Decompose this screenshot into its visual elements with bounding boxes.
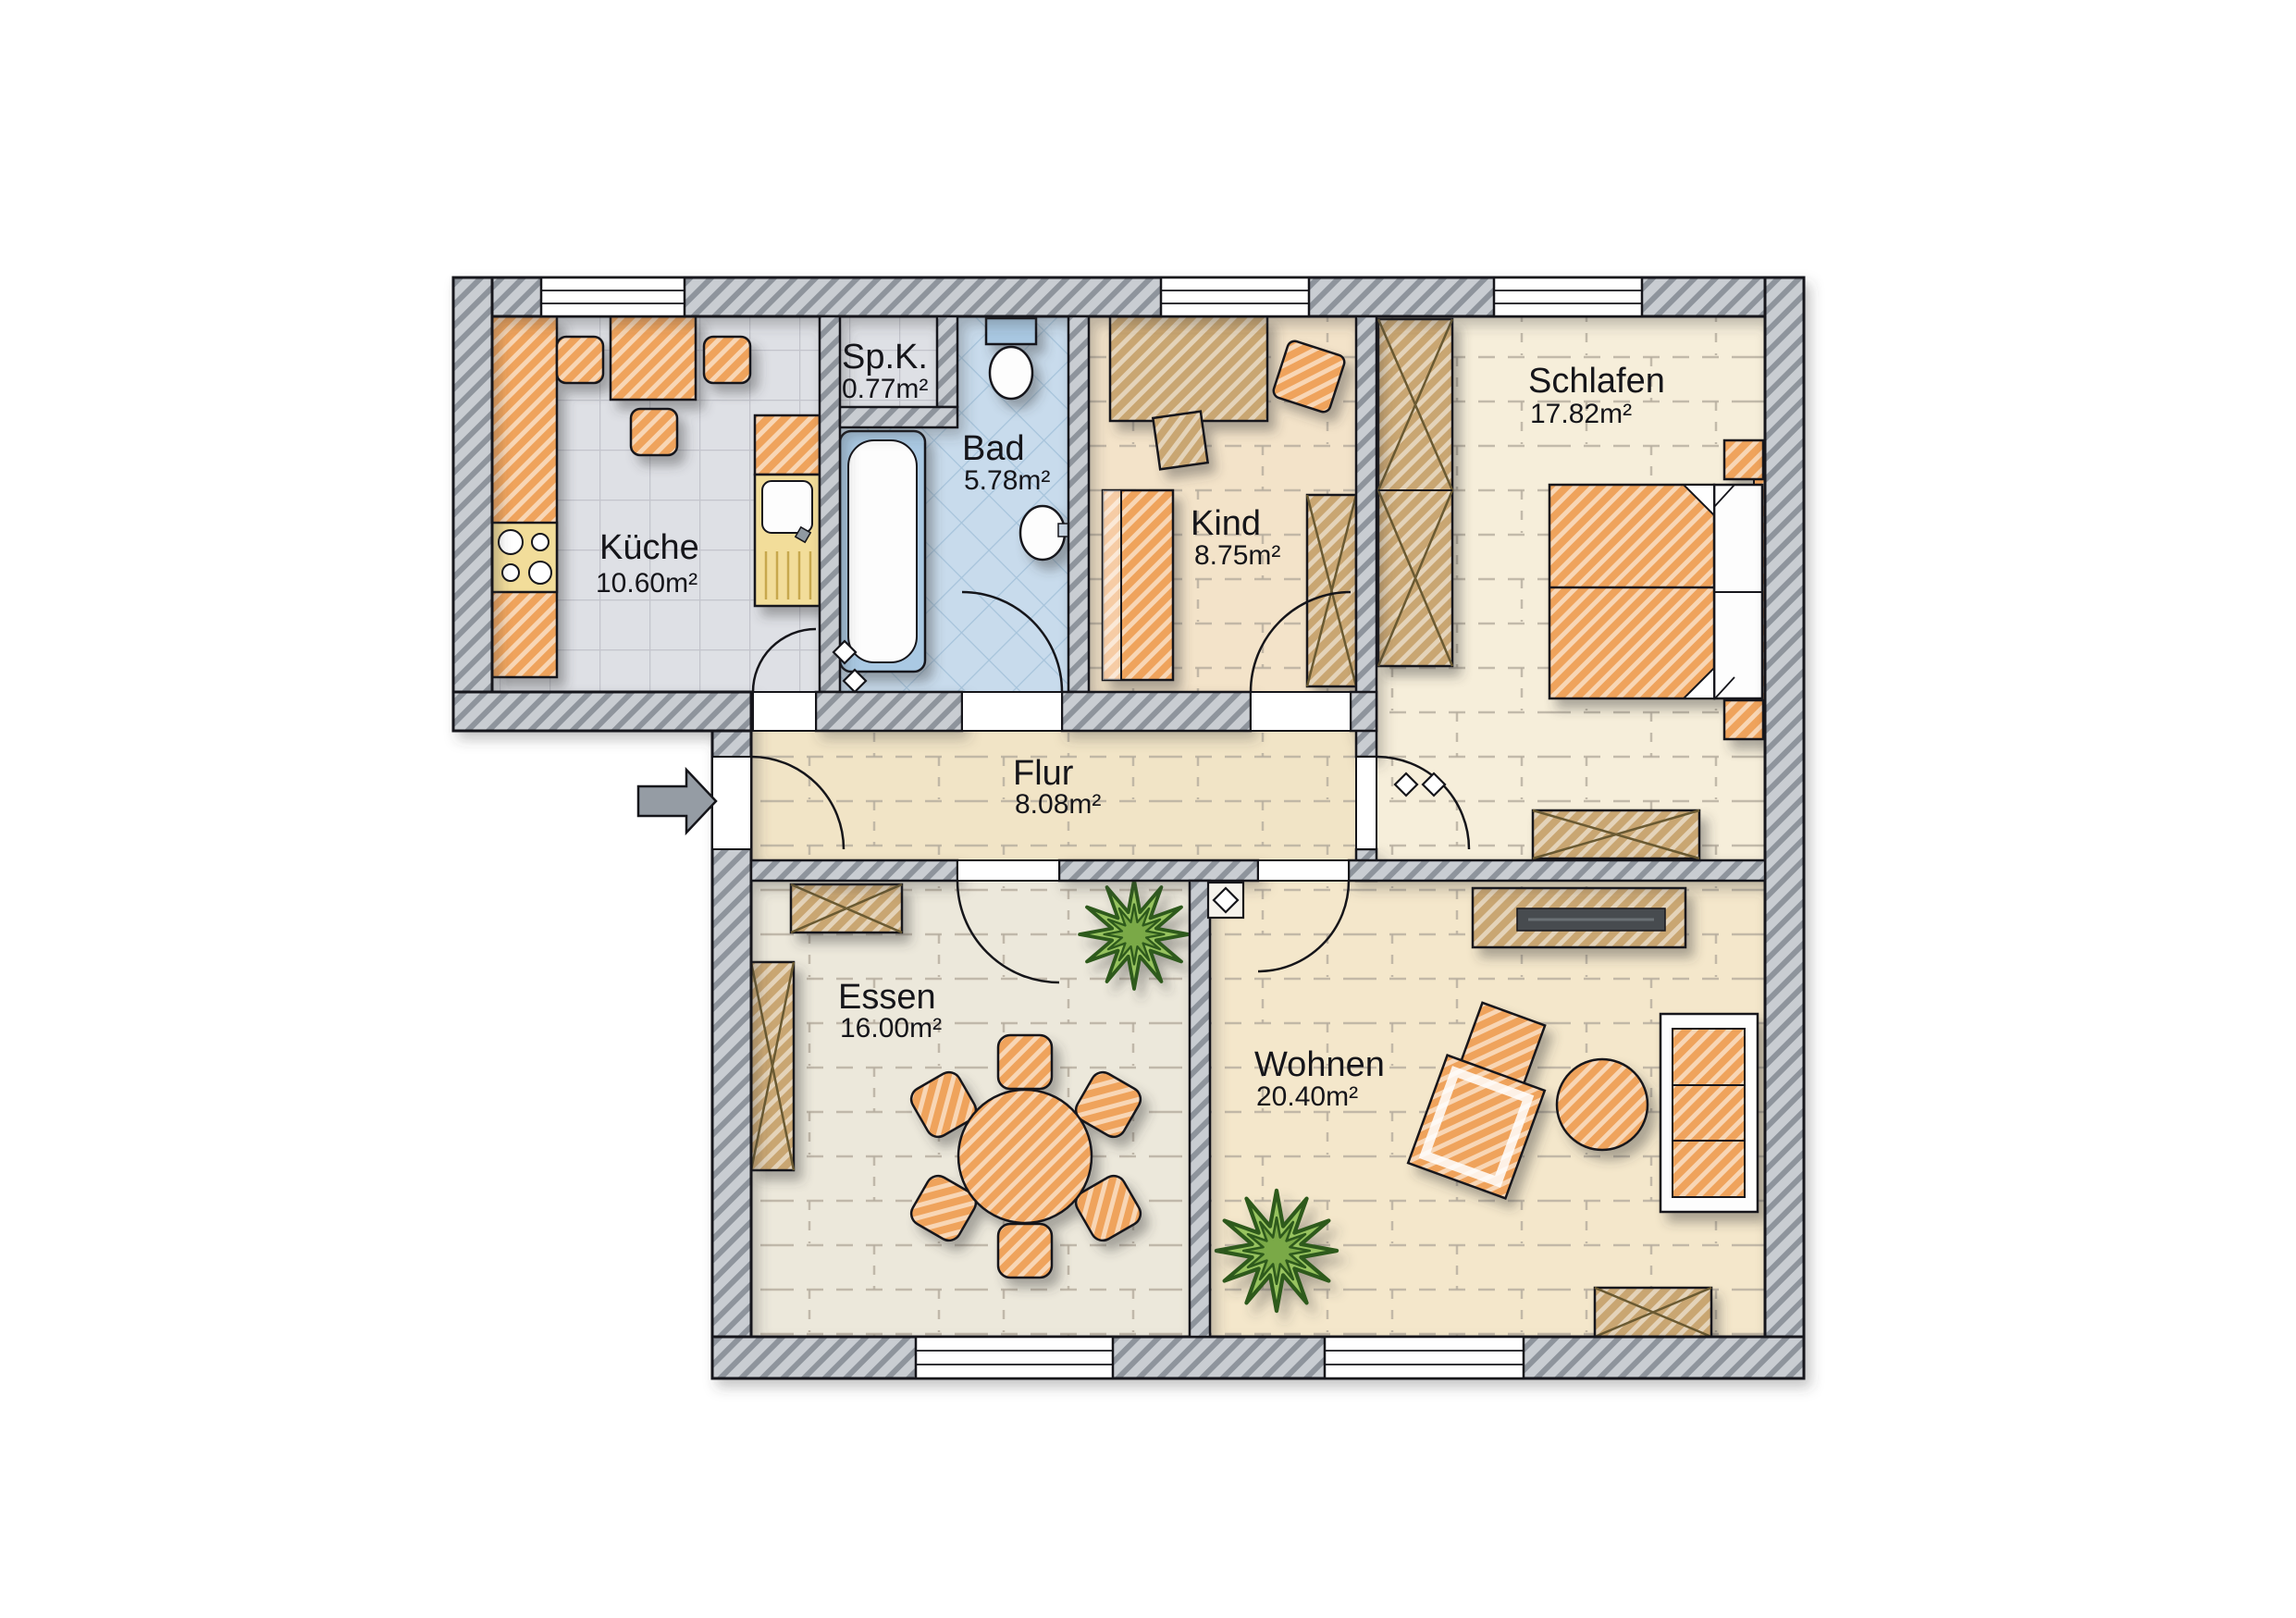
bedroom-door [1356, 757, 1376, 849]
window [541, 278, 685, 316]
tall-cabinet [751, 962, 794, 1170]
sink-unit [755, 415, 820, 606]
wall-dining-living [1190, 881, 1210, 1337]
kitchen-counter [492, 316, 557, 677]
window [1494, 278, 1642, 316]
wall-pantry-bottom [840, 407, 957, 427]
entrance-arrow-icon [638, 770, 716, 833]
floorplan-drawing: Küche 10.60m² Sp.K. 0.77m² Bad 5.78m² Ki… [0, 0, 2296, 1618]
child-bed [1103, 490, 1173, 680]
wardrobe [1307, 495, 1356, 686]
wall-pantry-right [937, 316, 957, 407]
toilet [986, 318, 1036, 399]
window [1161, 278, 1309, 316]
window [916, 1337, 1113, 1378]
nightstand [1724, 440, 1763, 479]
room-area-flur: 8.08m² [1015, 789, 1101, 820]
nightstand [1724, 700, 1763, 739]
kitchen-chair [704, 337, 750, 383]
kitchen-door [753, 692, 816, 731]
room-label-schlafen: Schlafen [1528, 362, 1665, 401]
mattresses [1549, 485, 1714, 698]
desk [1110, 316, 1267, 421]
wall-right [1765, 278, 1804, 1378]
room-area-wohnen: 20.40m² [1256, 1081, 1358, 1112]
sofa [1660, 1014, 1758, 1212]
wall-left-kitchen [453, 278, 492, 731]
entrance-door [712, 757, 751, 849]
chest [1595, 1288, 1711, 1337]
coffee-table [1557, 1059, 1648, 1150]
bathtub [840, 431, 925, 672]
duct-symbol [1208, 883, 1243, 918]
kitchen-table [611, 316, 696, 400]
wardrobe [1378, 319, 1452, 666]
room-area-kueche: 10.60m² [596, 568, 697, 599]
room-area-essen: 16.00m² [840, 1013, 942, 1044]
room-label-spk: Sp.K. [842, 338, 928, 377]
wall-bottom [712, 1337, 1804, 1378]
wall-bath-child [1068, 316, 1089, 692]
room-label-flur: Flur [1013, 754, 1074, 793]
dining-table [958, 1090, 1092, 1223]
dining-chair [998, 1035, 1052, 1089]
living-door [1258, 860, 1349, 881]
child-room-door [1251, 692, 1351, 731]
dresser [1533, 810, 1699, 858]
dining-chair [998, 1224, 1052, 1278]
window [1325, 1337, 1524, 1378]
wall-kitchen-bottom [453, 692, 751, 731]
sideboard [791, 884, 902, 933]
room-area-spk: 0.77m² [842, 374, 928, 404]
bathroom-door [962, 692, 1062, 731]
room-label-kind: Kind [1191, 504, 1261, 543]
room-area-schlafen: 17.82m² [1530, 399, 1632, 429]
stove [492, 523, 557, 592]
kitchen-chair [631, 409, 677, 455]
floorplan-page: Küche 10.60m² Sp.K. 0.77m² Bad 5.78m² Ki… [0, 0, 2296, 1618]
room-area-kind: 8.75m² [1194, 540, 1280, 571]
stool [1153, 412, 1207, 470]
room-label-wohnen: Wohnen [1254, 1045, 1385, 1084]
tv-lowboard [1473, 888, 1685, 947]
wall-hall-top [816, 692, 962, 731]
room-label-essen: Essen [838, 978, 936, 1017]
wall-kitchen-bath [820, 316, 840, 692]
wall-child-bedroom [1356, 316, 1376, 757]
wall-hall-bottom [751, 860, 957, 881]
room-area-bad: 5.78m² [964, 465, 1050, 496]
kitchen-sink [762, 481, 812, 533]
dining-door [957, 860, 1059, 881]
room-label-bad: Bad [962, 429, 1025, 468]
double-bed [1549, 470, 1765, 714]
room-label-kueche: Küche [599, 528, 699, 567]
kitchen-chair [557, 337, 603, 383]
